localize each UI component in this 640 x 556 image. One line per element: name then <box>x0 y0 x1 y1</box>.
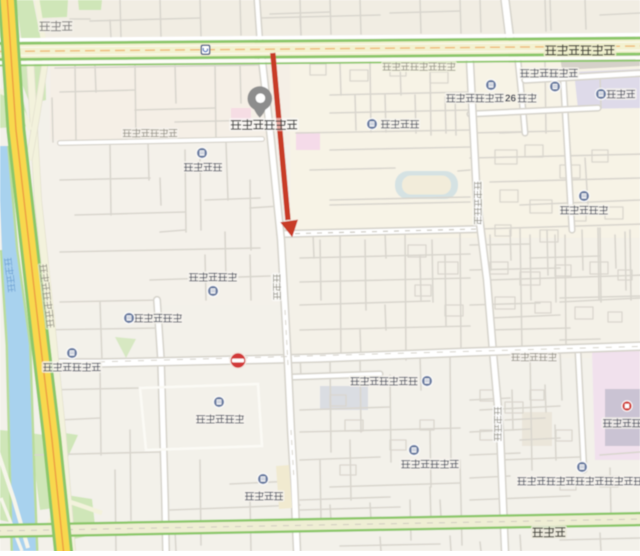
svg-text:26: 26 <box>505 94 517 105</box>
